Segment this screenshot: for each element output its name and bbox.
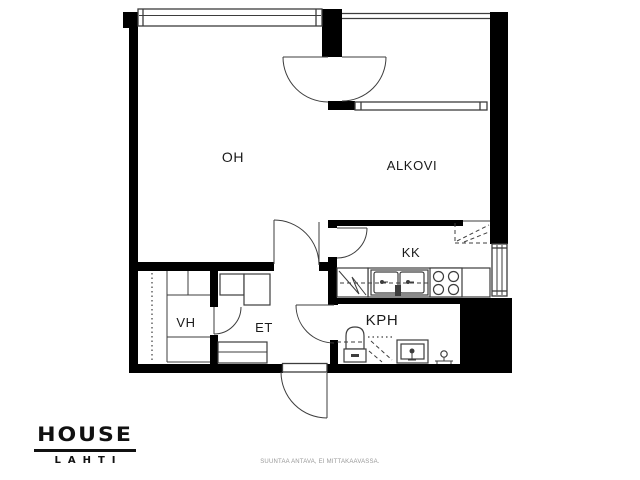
hall-closet-icon: [220, 274, 270, 305]
stove-icon: [430, 268, 462, 297]
floor-plan-page: OH ALKOVI KK VH ET KPH HOUSE LAHTI SUUNT…: [0, 0, 640, 480]
window-alcove-top: [342, 14, 490, 19]
room-label-bathroom: KPH: [366, 312, 399, 329]
agency-logo: HOUSE LAHTI: [34, 427, 136, 466]
floor-plan: OH ALKOVI KK VH ET KPH: [0, 0, 640, 480]
shoe-cabinet-icon: [218, 342, 267, 363]
window-kitchen: [492, 244, 507, 296]
shower-icon: [368, 337, 394, 362]
door-entry: [281, 364, 327, 419]
window-alcove-partition: [355, 102, 487, 110]
door-bathroom: [296, 305, 334, 343]
room-label-kitchenette: KK: [402, 245, 421, 260]
logo-divider: [34, 449, 136, 452]
room-label-hall: ET: [255, 320, 273, 335]
window-living-room: [138, 9, 322, 26]
disclaimer-text: SUUNTAA ANTAVA, EI MITTAKAAVASSA.: [248, 459, 392, 465]
door-kitchen: [337, 228, 367, 258]
logo-secondary-text: LAHTI: [34, 455, 136, 466]
room-label-alcove: ALKOVI: [387, 158, 438, 173]
washing-machine-valve-icon: [435, 351, 453, 364]
room-label-closet-room: VH: [176, 315, 195, 330]
logo-primary-text: HOUSE: [34, 427, 136, 445]
room-label-living-room: OH: [222, 149, 244, 165]
washbasin-icon: [397, 340, 428, 363]
door-balcony-left-leaf: [283, 57, 328, 102]
door-living-to-hall: [274, 220, 319, 265]
door-closet-room: [214, 307, 241, 334]
toilet-icon: [337, 327, 366, 362]
door-balcony-right-leaf: [342, 57, 386, 101]
